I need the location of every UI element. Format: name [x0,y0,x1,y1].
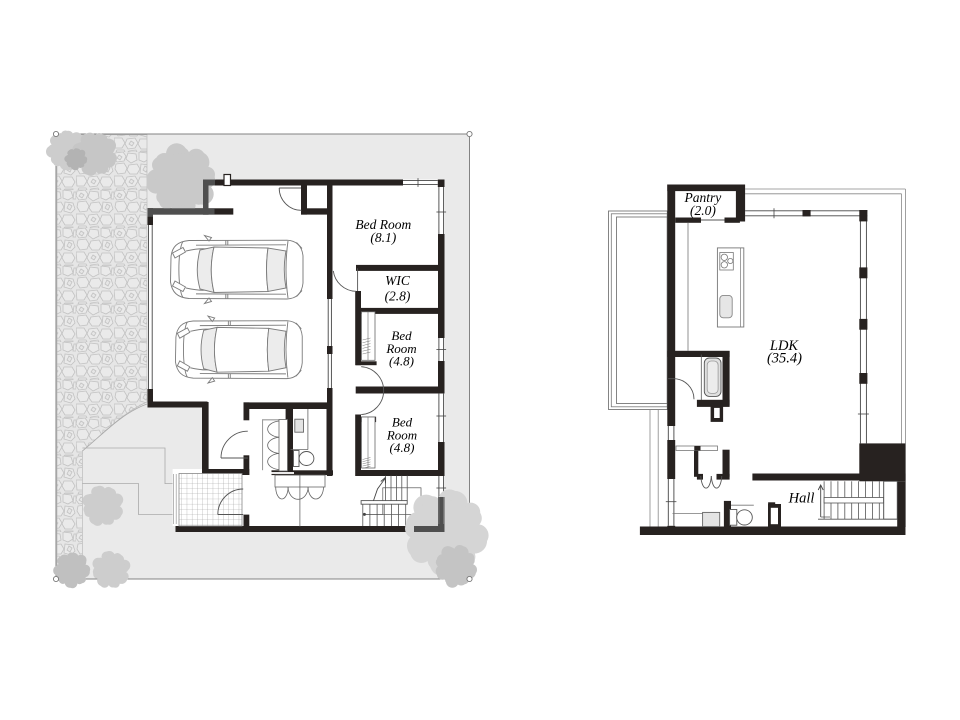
svg-text:(2.8): (2.8) [385,288,411,303]
svg-text:Hall: Hall [788,491,815,507]
svg-text:WIC: WIC [385,273,411,288]
svg-text:(8.1): (8.1) [370,230,396,245]
svg-text:(4.8): (4.8) [389,354,414,369]
svg-text:(2.0): (2.0) [690,203,716,218]
svg-text:(35.4): (35.4) [767,351,802,367]
svg-text:(4.8): (4.8) [390,440,415,455]
